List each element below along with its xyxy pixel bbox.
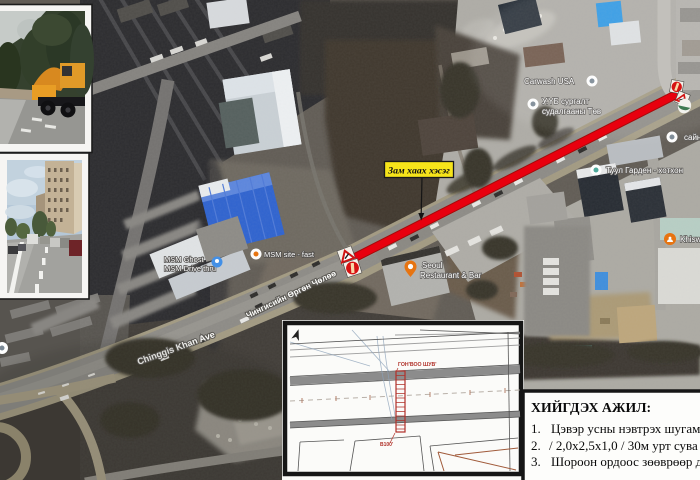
svg-text:ХИЙГДЭХ АЖИЛ:: ХИЙГДЭХ АЖИЛ: bbox=[531, 399, 651, 415]
svg-text:Цэвэр усны нэвтрэх шугам: Цэвэр усны нэвтрэх шугам bbox=[551, 421, 700, 436]
svg-text:1.: 1. bbox=[531, 421, 541, 436]
svg-text:Шороон ордоос зөөврөөр д: Шороон ордоос зөөврөөр д bbox=[551, 454, 700, 469]
svg-text:3.: 3. bbox=[531, 454, 541, 469]
svg-text:ГОН'ВОО ШУВ': ГОН'ВОО ШУВ' bbox=[398, 362, 436, 368]
svg-text:2.: 2. bbox=[531, 438, 541, 453]
svg-text:В100': В100' bbox=[380, 442, 393, 448]
svg-text:Зам хаах хэсэг: Зам хаах хэсэг bbox=[387, 166, 450, 177]
svg-text:/ 2,0х2,5х1,0 / 30м урт сува: / 2,0х2,5х1,0 / 30м урт сува bbox=[549, 438, 698, 453]
